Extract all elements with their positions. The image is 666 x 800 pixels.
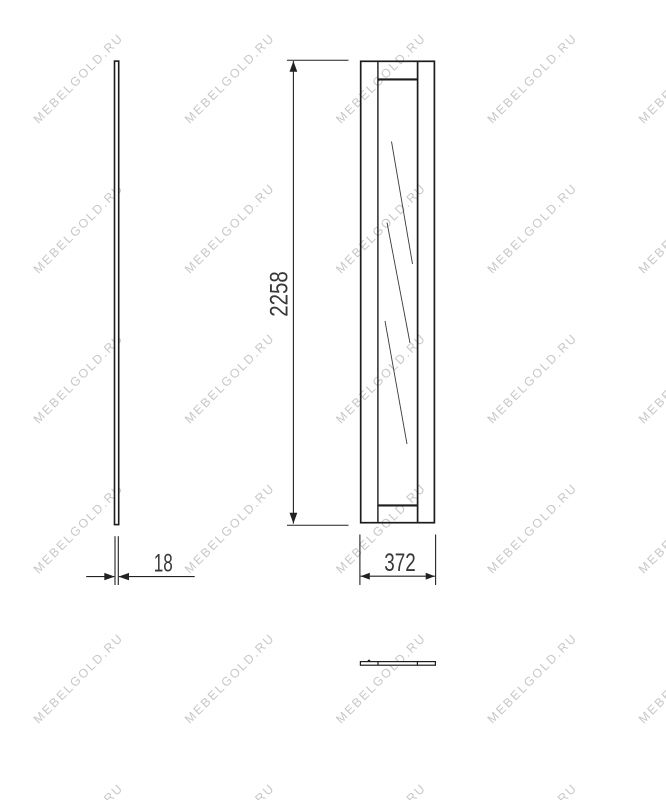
svg-text:18: 18	[154, 549, 173, 577]
svg-text:2258: 2258	[265, 271, 293, 317]
svg-text:372: 372	[384, 549, 416, 577]
